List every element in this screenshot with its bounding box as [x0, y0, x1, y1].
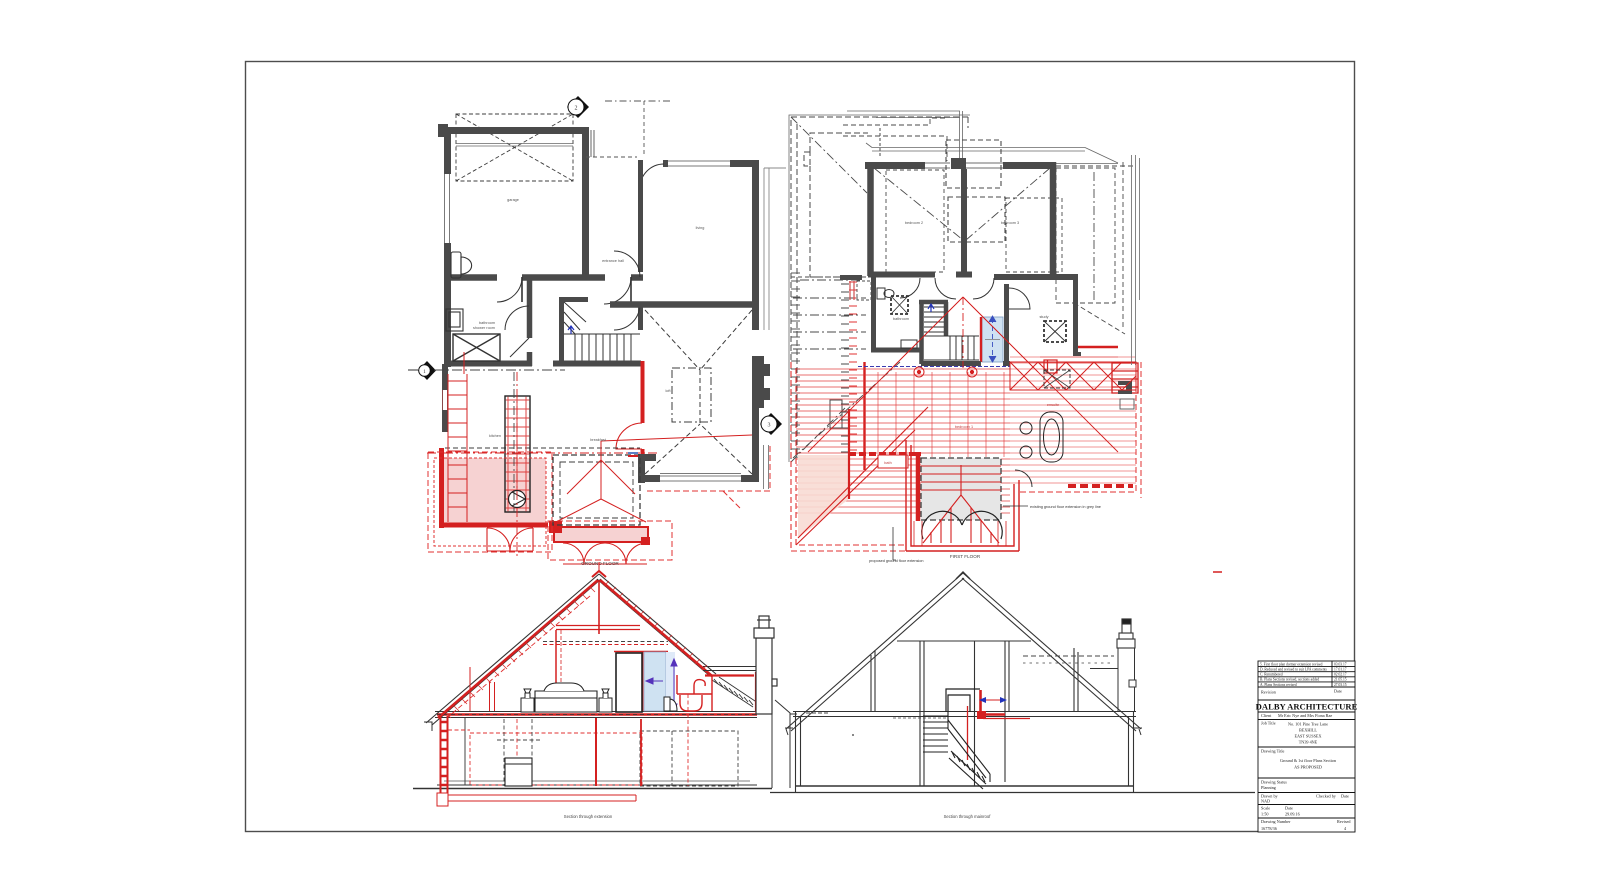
svg-text:FIRST FLOOR: FIRST FLOOR	[950, 554, 981, 559]
svg-text:3: 3	[768, 423, 771, 429]
svg-text:Revision: Revision	[1261, 690, 1277, 695]
svg-text:ensuite: ensuite	[1047, 403, 1059, 407]
svg-text:bedroom 2: bedroom 2	[905, 221, 923, 225]
svg-text:Ground & 1st floor Plans Secti: Ground & 1st floor Plans Section	[1280, 758, 1337, 763]
svg-text:bedroom 1: bedroom 1	[955, 425, 973, 429]
svg-text:Drawing Status: Drawing Status	[1261, 780, 1287, 785]
svg-text:EAST SUSSEX: EAST SUSSEX	[1294, 734, 1321, 739]
svg-text:Drawing Number: Drawing Number	[1261, 819, 1291, 824]
svg-text:existing ground floor extensio: existing ground floor extension in grey …	[1030, 505, 1101, 509]
svg-text:A. Plans Sections revised: A. Plans Sections revised	[1260, 683, 1297, 687]
svg-text:Date: Date	[1341, 794, 1349, 799]
svg-text:Scale: Scale	[1261, 806, 1270, 811]
svg-text:Mr Eric Nye and Mrs Fiona Rae: Mr Eric Nye and Mrs Fiona Rae	[1278, 713, 1332, 718]
svg-text:bedroom 3: bedroom 3	[1001, 221, 1019, 225]
svg-text:Date: Date	[1285, 806, 1293, 811]
svg-text:21.05.15: 21.05.15	[1334, 678, 1347, 682]
svg-text:living: living	[696, 226, 705, 230]
svg-text:Checked by: Checked by	[1316, 794, 1337, 799]
svg-text:TN39 4NE: TN39 4NE	[1299, 740, 1318, 745]
svg-text:29.09.16: 29.09.16	[1285, 812, 1300, 817]
svg-text:kitchen: kitchen	[489, 434, 501, 438]
svg-text:DALBY ARCHITECTURE: DALBY ARCHITECTURE	[1256, 702, 1358, 712]
svg-text:2: 2	[575, 106, 578, 112]
svg-text:17.01.17: 17.01.17	[1334, 668, 1347, 672]
svg-text:5. First floor plan dormer ext: 5. First floor plan dormer extension rev…	[1260, 662, 1323, 666]
svg-text:03.03.17: 03.03.17	[1334, 662, 1347, 666]
svg-text:GROUND FLOOR: GROUND FLOOR	[581, 561, 619, 566]
svg-text:1:50: 1:50	[1261, 812, 1268, 817]
svg-text:Drawing Title: Drawing Title	[1261, 749, 1285, 754]
svg-text:27.03.15: 27.03.15	[1334, 683, 1347, 687]
svg-text:BEXHILL: BEXHILL	[1299, 728, 1317, 733]
svg-text:study: study	[1039, 315, 1048, 319]
svg-text:NAD: NAD	[1261, 799, 1270, 804]
svg-text:bathroom: bathroom	[479, 321, 495, 325]
svg-text:Section through extension: Section through extension	[564, 814, 613, 819]
svg-text:entrance hall: entrance hall	[602, 259, 624, 263]
svg-text:Job Title: Job Title	[1261, 721, 1276, 726]
svg-text:breakfast: breakfast	[590, 438, 607, 442]
svg-text:bathroom: bathroom	[893, 317, 909, 321]
svg-text:garage: garage	[507, 198, 519, 202]
svg-text:shower room: shower room	[473, 326, 495, 330]
svg-text:16778/36: 16778/36	[1261, 826, 1277, 831]
svg-text:Section through mainroof: Section through mainroof	[944, 814, 992, 819]
svg-text:Client: Client	[1261, 713, 1272, 718]
svg-text:Revised: Revised	[1337, 819, 1351, 824]
svg-text:No. 101 Pine Tree Lane: No. 101 Pine Tree Lane	[1288, 722, 1328, 727]
svg-text:AS PROPOSED: AS PROPOSED	[1294, 765, 1322, 770]
svg-text:Date: Date	[1334, 689, 1342, 694]
svg-text:D. Reduced and revised to suit: D. Reduced and revised to suit LPA comme…	[1260, 668, 1328, 672]
svg-text:proposed ground floor extensio: proposed ground floor extension	[869, 559, 923, 563]
svg-text:C. Renumbered: C. Renumbered	[1260, 673, 1283, 677]
svg-text:02.02.17: 02.02.17	[1334, 673, 1347, 677]
svg-text:bath: bath	[884, 461, 891, 465]
svg-text:Planning: Planning	[1261, 785, 1277, 790]
